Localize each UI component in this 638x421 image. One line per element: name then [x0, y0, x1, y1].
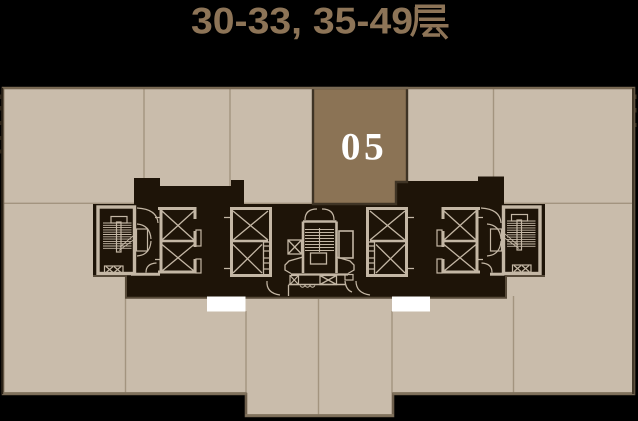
svg-text:05: 05 [341, 124, 388, 168]
svg-text:30-33, 35-49: 30-33, 35-49 [191, 1, 413, 42]
